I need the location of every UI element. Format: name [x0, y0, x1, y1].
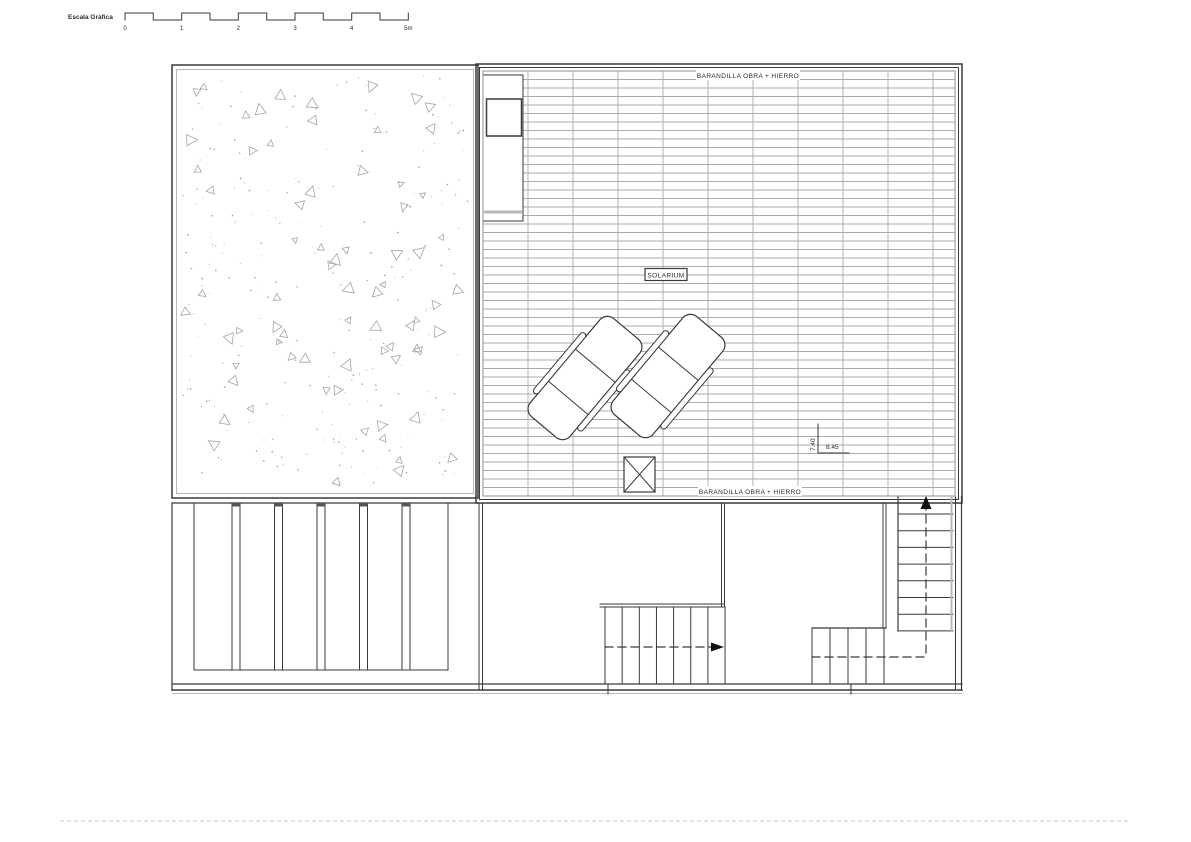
gravel-terrace-border [172, 65, 478, 498]
gravel-terrace [172, 65, 478, 498]
gravel-texture [178, 75, 468, 488]
stairs-middle-treads [605, 607, 725, 684]
stairs-right-flight [898, 496, 953, 657]
drawing-sheet: Escala Gráfica 0 1 2 3 4 5m [0, 0, 1191, 842]
dimension-width-text: 8.45 [826, 444, 839, 451]
solarium-deck: BARANDILLA OBRA + HIERRO BARANDILLA OBRA… [476, 64, 962, 503]
scale-tick-0: 0 [123, 26, 127, 32]
scale-tick-2: 2 [237, 26, 241, 32]
stairs-middle-arrow-right [711, 643, 724, 652]
scale-bar-ruler [125, 13, 408, 20]
railing-label-top-text: BARANDILLA OBRA + HIERRO [697, 73, 799, 80]
skylight-cross [624, 457, 655, 492]
scale-tick-5m: 5m [404, 26, 412, 32]
stairs-middle [605, 607, 725, 684]
scale-tick-3: 3 [293, 26, 297, 32]
scale-bar: Escala Gráfica 0 1 2 3 4 5m [68, 13, 412, 32]
solarium-label: SOLARIUM [645, 269, 687, 281]
stairs-lower-right [812, 628, 926, 684]
railing-label-bottom: BARANDILLA OBRA + HIERRO [698, 486, 802, 496]
floor-plan-svg: Escala Gráfica 0 1 2 3 4 5m [0, 0, 1191, 842]
pergola-area [172, 503, 478, 690]
gravel-terrace-inner-border [177, 70, 474, 494]
chimney-outline [483, 75, 523, 221]
railing-label-top: BARANDILLA OBRA + HIERRO [696, 70, 800, 80]
scale-bar-label: Escala Gráfica [68, 14, 113, 21]
scale-tick-4: 4 [350, 26, 354, 32]
scale-tick-1: 1 [180, 26, 184, 32]
chimney-flue [487, 99, 522, 136]
railing-label-bottom-text: BARANDILLA OBRA + HIERRO [699, 489, 801, 496]
dimension-height-text: 7.40 [810, 438, 817, 451]
pergola-slats [232, 503, 410, 670]
stairs-lower-right-treads [812, 628, 884, 684]
middle-room-wall [600, 503, 725, 607]
solarium-label-text: SOLARIUM [647, 273, 684, 280]
lower-level [172, 496, 962, 694]
chimney-bulkhead [483, 75, 523, 221]
